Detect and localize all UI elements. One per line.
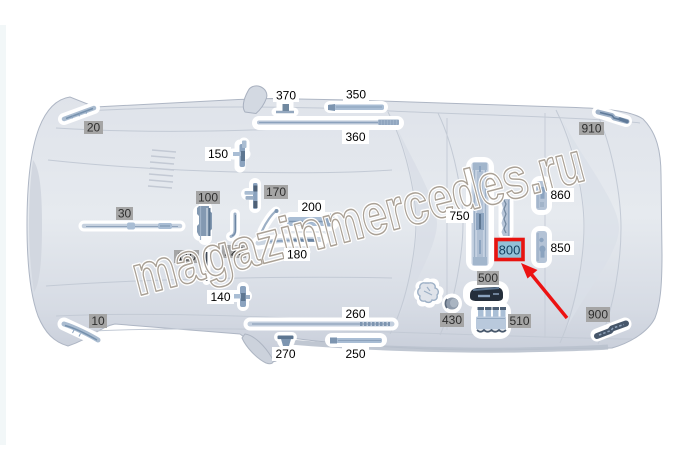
svg-text:860: 860 <box>550 188 570 202</box>
svg-text:250: 250 <box>345 347 365 361</box>
svg-text:20: 20 <box>87 121 101 135</box>
svg-text:900: 900 <box>588 308 608 322</box>
svg-text:800: 800 <box>499 243 521 258</box>
svg-text:10: 10 <box>91 314 105 328</box>
svg-text:850: 850 <box>550 241 570 255</box>
svg-text:100: 100 <box>198 191 218 205</box>
svg-text:140: 140 <box>210 290 230 304</box>
svg-text:500: 500 <box>478 271 498 285</box>
svg-text:430: 430 <box>442 313 462 327</box>
svg-text:350: 350 <box>346 88 366 102</box>
svg-text:170: 170 <box>266 185 286 199</box>
svg-text:200: 200 <box>301 200 321 214</box>
svg-text:180: 180 <box>287 248 307 262</box>
svg-text:370: 370 <box>276 89 296 103</box>
svg-text:30: 30 <box>118 207 132 221</box>
svg-text:270: 270 <box>275 347 295 361</box>
svg-text:910: 910 <box>581 122 601 136</box>
svg-text:750: 750 <box>449 209 469 223</box>
svg-text:150: 150 <box>208 147 228 161</box>
svg-text:260: 260 <box>345 307 365 321</box>
svg-text:360: 360 <box>345 130 365 144</box>
svg-text:510: 510 <box>509 314 529 328</box>
